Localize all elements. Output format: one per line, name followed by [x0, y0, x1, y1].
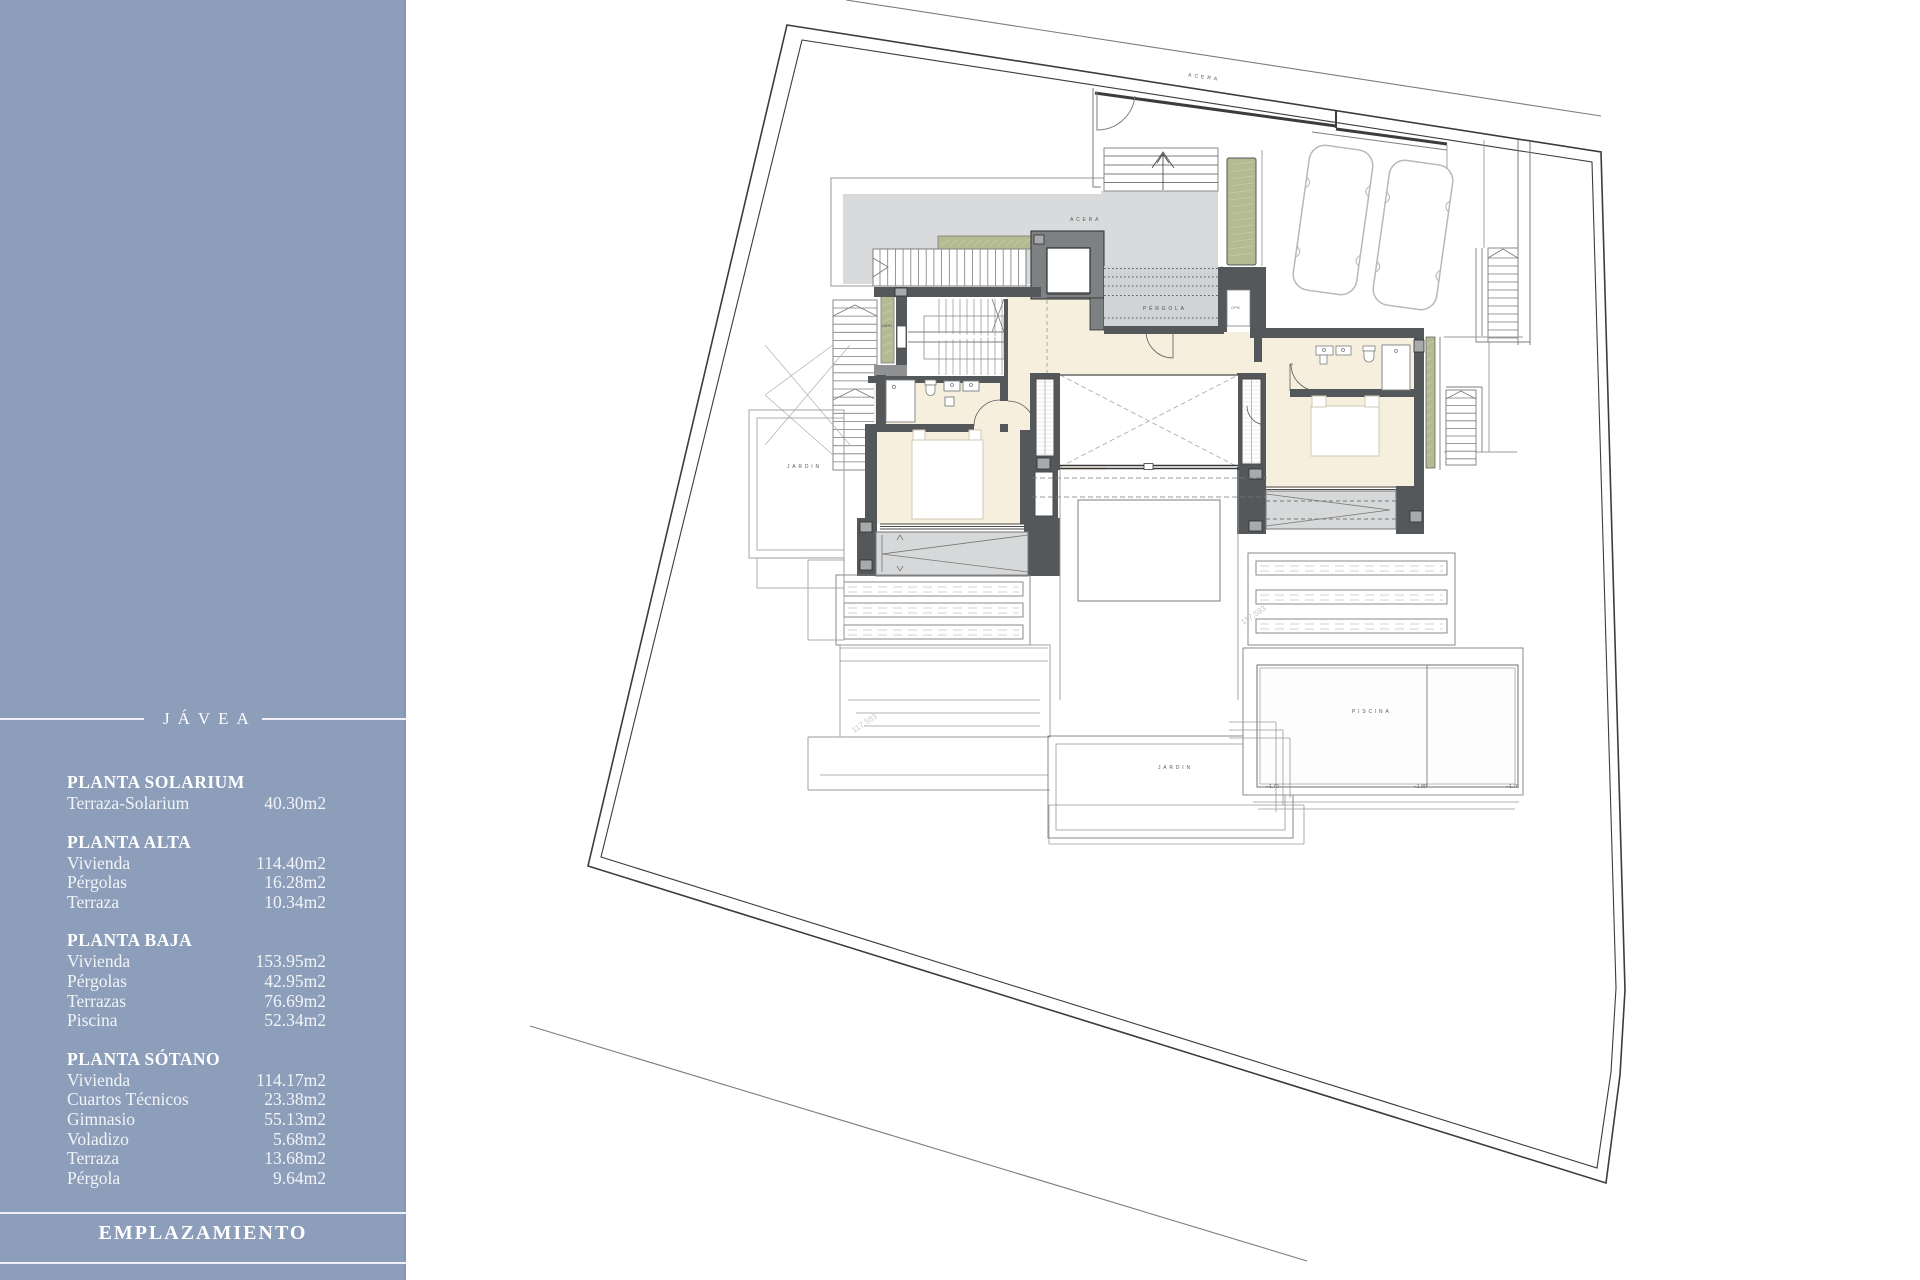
svg-text:ACERA: ACERA: [1070, 217, 1101, 223]
svg-text:−1.70: −1.70: [1506, 784, 1519, 790]
svg-text:JARDIN: JARDIN: [787, 464, 822, 470]
svg-text:JARD.: JARD.: [882, 323, 894, 328]
svg-text:−1.70: −1.70: [1266, 784, 1279, 790]
svg-text:OPN.: OPN.: [1231, 305, 1241, 310]
svg-text:PÉRGOLA: PÉRGOLA: [1143, 305, 1187, 312]
svg-text:−1.80: −1.80: [1414, 784, 1427, 790]
svg-text:PISCINA: PISCINA: [1352, 709, 1392, 715]
svg-text:JARDIN: JARDIN: [1158, 765, 1193, 771]
